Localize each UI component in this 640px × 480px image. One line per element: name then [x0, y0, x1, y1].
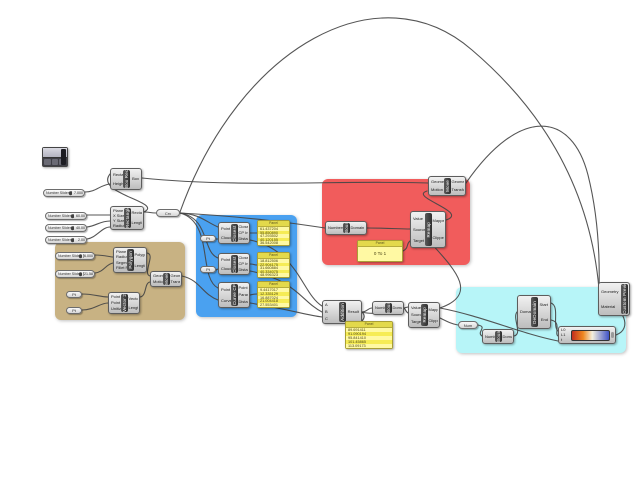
wire-hub-bounds-red[interactable]: [180, 213, 325, 228]
component-remap-bottom[interactable]: Value Source Target Remap Mapped Clipped: [408, 302, 440, 328]
port-label[interactable]: Plane: [112, 209, 124, 213]
component-closest-point-1[interactable]: Point Cloud Closest Point Closest Point …: [218, 222, 250, 244]
port-label[interactable]: Transform: [170, 280, 181, 284]
port-label[interactable]: Mapped: [432, 219, 445, 223]
param-point-a[interactable]: Pt: [66, 291, 82, 298]
port-label[interactable]: L1: [560, 333, 569, 337]
port-label[interactable]: Rectangle: [131, 211, 143, 215]
port-label[interactable]: Point A: [110, 295, 121, 299]
port-label[interactable]: Start: [538, 303, 550, 307]
slider-value: 60.00: [76, 214, 85, 218]
gradient-preview-bar[interactable]: [571, 330, 610, 341]
port-label[interactable]: Clipped: [428, 319, 439, 323]
mini-segment: [52, 159, 59, 165]
gradient-output-nub[interactable]: [611, 332, 614, 338]
component-name-strip: Rectangle: [124, 208, 131, 228]
component-bounds-red[interactable]: Numbers Bounds Domain: [325, 221, 367, 235]
wire-box-to-move[interactable]: [142, 178, 428, 183]
slider-track[interactable]: 21.58: [84, 271, 94, 277]
component-gradient[interactable]: L0 L1 t: [558, 326, 616, 344]
port-label[interactable]: Radius: [115, 255, 127, 259]
port-label[interactable]: B: [324, 310, 339, 314]
port-label[interactable]: Result: [346, 310, 361, 314]
port-label[interactable]: Curve: [220, 299, 231, 303]
port-label[interactable]: Target: [410, 320, 421, 324]
port-label[interactable]: Domain: [392, 306, 403, 310]
wire-cp2-panel2[interactable]: [250, 264, 257, 265]
wire-slider-y[interactable]: [87, 221, 110, 227]
component-bounds-cyan[interactable]: Numbers Bounds Domain: [482, 329, 514, 344]
port-label[interactable]: Y Size: [112, 219, 124, 223]
param-point-2[interactable]: Pt: [200, 266, 216, 273]
port-label[interactable]: Cloud: [220, 236, 231, 240]
slider-x-size[interactable]: Number Slider 60.00: [45, 212, 87, 220]
port-label[interactable]: Unitize: [110, 307, 121, 311]
wire-add-bounds[interactable]: [362, 308, 372, 312]
port-label[interactable]: Geometry: [170, 274, 181, 278]
component-name-strip: Move: [444, 178, 451, 194]
port-label[interactable]: Mapped: [428, 308, 439, 312]
param-point-b[interactable]: Pt: [66, 307, 82, 314]
component-custom-preview[interactable]: Geometry Material Custom Preview: [598, 282, 630, 316]
port-label[interactable]: Vector: [128, 297, 139, 301]
component-name-strip: Box Rectangle: [123, 170, 130, 188]
component-move-tan[interactable]: Geometry Motion Move Geometry Transform: [150, 271, 182, 287]
port-label[interactable]: Fillet Radius: [115, 266, 127, 270]
port-label[interactable]: X Size: [112, 214, 124, 218]
port-label[interactable]: Rectangle: [112, 173, 123, 177]
slider-radius[interactable]: Number Slider 2.00: [45, 236, 87, 244]
param-label: Pt: [72, 292, 76, 297]
port-label[interactable]: Plane: [115, 250, 127, 254]
wire-slider-height[interactable]: [85, 184, 110, 192]
component-name-strip: Vector 2Pt: [121, 294, 128, 312]
port-label[interactable]: Value: [412, 217, 425, 221]
slider-value: 2.00: [78, 238, 85, 242]
wire-ccp-panel3[interactable]: [250, 294, 257, 295]
param-label: Pt: [206, 236, 210, 241]
component-name-strip: Bounds: [385, 303, 392, 313]
component-name-strip: Curve CP: [231, 284, 238, 306]
panel-3[interactable]: Panel 9.4417017 12.335129 16.887024 21.0…: [257, 281, 290, 308]
mini-component[interactable]: [42, 147, 68, 167]
port-label[interactable]: Domain: [519, 310, 531, 314]
component-name-strip: Custom Preview: [621, 284, 628, 314]
component-name-strip: Bounds: [495, 331, 502, 342]
panel-red[interactable]: Panel 0 To 1: [357, 240, 403, 262]
port-label[interactable]: Point B: [110, 301, 121, 305]
component-vector-2pt[interactable]: Point A Point B Unitize Vector 2Pt Vecto…: [108, 292, 140, 314]
port-label[interactable]: Geometry: [430, 180, 444, 184]
slider-track[interactable]: 6.000: [84, 253, 94, 259]
slider-track[interactable]: 60.00: [74, 213, 86, 219]
port-label[interactable]: Point: [238, 286, 249, 290]
panel-2[interactable]: Panel 18.812506 22.904175 31.660884 40.3…: [257, 252, 290, 278]
param-number-cyan[interactable]: Num: [458, 321, 478, 329]
slider-knob[interactable]: [71, 214, 75, 218]
panel-1[interactable]: Panel 61.437204 55.850890 47.293502 40.1…: [257, 220, 290, 246]
param-label: Num: [464, 323, 472, 328]
wire-slider-r[interactable]: [87, 227, 110, 239]
port-label[interactable]: Geometry: [451, 180, 465, 184]
port-label[interactable]: Parameter: [238, 293, 249, 297]
component-name-strip: Bounds: [343, 223, 350, 233]
slider-knob[interactable]: [79, 254, 83, 258]
port-label[interactable]: Domain: [350, 226, 366, 230]
port-label[interactable]: L0: [560, 328, 569, 332]
grasshopper-canvas[interactable]: Number Slider 7.000 Number Slider 60.00 …: [0, 0, 640, 480]
slider-value: 7.000: [74, 191, 83, 195]
port-label[interactable]: Cloud: [220, 267, 231, 271]
wire-dd-l1[interactable]: [551, 320, 558, 336]
port-label[interactable]: Source: [412, 228, 425, 232]
param-point-1[interactable]: Pt: [200, 235, 216, 242]
slider-value: 40.00: [76, 226, 85, 230]
port-label[interactable]: Geometry: [152, 274, 163, 278]
port-label[interactable]: Polygon: [134, 253, 146, 257]
panel-row: 27.553401: [258, 303, 289, 307]
component-closest-point-2[interactable]: Point Cloud Closest Point Closest Point …: [218, 253, 250, 275]
port-label[interactable]: Source: [410, 313, 421, 317]
port-label[interactable]: Target: [412, 239, 425, 243]
param-label: Pt: [72, 308, 76, 313]
panel-row: 48.996323: [258, 273, 289, 277]
slider-track[interactable]: 7.000: [72, 190, 84, 196]
port-label[interactable]: Motion: [430, 188, 444, 192]
port-label[interactable]: Motion: [152, 280, 163, 284]
port-label[interactable]: Distance: [238, 300, 249, 304]
port-label[interactable]: Geometry: [600, 290, 621, 294]
wire-vec-move[interactable]: [140, 282, 150, 297]
wire-panelred-remap[interactable]: [403, 241, 410, 251]
port-label[interactable]: Length: [131, 221, 143, 225]
component-remap-red[interactable]: Value Source Target Remap Mapped Clipped: [410, 211, 446, 248]
wire-boundsred-remap[interactable]: [367, 228, 410, 229]
wire-remapb-capsule[interactable]: [440, 318, 458, 325]
port-label[interactable]: t: [560, 338, 569, 342]
port-label[interactable]: Length: [134, 264, 146, 268]
port-label[interactable]: Height: [112, 182, 123, 186]
param-curve-hub[interactable]: Crv: [156, 209, 180, 217]
wire-rect-to-hub[interactable]: [144, 212, 156, 213]
port-label[interactable]: Box: [130, 177, 141, 181]
wire-movered-arc-preview[interactable]: [466, 126, 599, 291]
wires-layer: [0, 0, 640, 480]
panel-bottom[interactable]: Panel 89.691411 91.090194 95.841410 101.…: [345, 321, 393, 349]
slider-value: 21.58: [84, 272, 93, 276]
component-name-strip: Move: [163, 273, 170, 285]
component-name-strip: Polygon: [127, 249, 134, 271]
component-bounds-bottom[interactable]: Numbers Bounds Domain: [372, 301, 404, 315]
slider-track[interactable]: 2.00: [74, 237, 86, 243]
port-label[interactable]: End: [538, 318, 550, 322]
port-label[interactable]: Numbers: [327, 226, 343, 230]
wire-ptA-vec[interactable]: [82, 294, 108, 297]
component-rectangle[interactable]: Plane X Size Y Size Radius Rectangle Rec…: [110, 206, 144, 230]
component-curve-closest-point[interactable]: Point Curve Curve CP Point Parameter Dis…: [218, 282, 250, 308]
port-label[interactable]: Distance: [238, 237, 249, 241]
slider-height[interactable]: Number Slider 7.000: [43, 189, 85, 197]
port-label[interactable]: Transform: [451, 188, 465, 192]
port-label[interactable]: CP Index: [238, 262, 249, 266]
port-label[interactable]: Segments: [115, 261, 127, 265]
port-label[interactable]: Material: [600, 305, 621, 309]
component-move-red[interactable]: Geometry Motion Move Geometry Transform: [428, 176, 466, 196]
port-label[interactable]: Numbers: [374, 306, 385, 310]
component-deconstruct-domain[interactable]: Domain DeDomain Start End: [517, 295, 551, 329]
port-label[interactable]: Point: [220, 288, 231, 292]
port-label[interactable]: Value: [410, 306, 421, 310]
slider-track[interactable]: 40.00: [74, 225, 86, 231]
slider-knob[interactable]: [71, 238, 75, 242]
wire-t1-polygon[interactable]: [95, 255, 113, 257]
panel-row: 36.542008: [258, 241, 289, 245]
port-label[interactable]: C: [324, 317, 339, 321]
component-name-strip: Remap: [421, 304, 428, 326]
slider-poly-radius[interactable]: Number Slider 6.000: [55, 252, 95, 260]
component-name-strip: Remap: [425, 213, 432, 246]
component-name-strip: DeDomain: [531, 297, 538, 327]
port-label[interactable]: Numbers: [484, 335, 495, 339]
component-name-strip: Closest Point: [231, 255, 238, 273]
port-label[interactable]: Domain: [502, 335, 513, 339]
panel-row: 113.09173: [346, 344, 392, 348]
port-label[interactable]: Radius: [112, 224, 124, 228]
port-label[interactable]: Distance: [238, 268, 249, 272]
port-label[interactable]: Point: [220, 227, 231, 231]
panel-row: 0 To 1: [358, 247, 402, 261]
param-label: Crv: [165, 211, 171, 216]
port-label[interactable]: CP Index: [238, 231, 249, 235]
slider-poly-segments[interactable]: Number Slider 21.58: [55, 270, 95, 278]
component-box-rectangle[interactable]: Rectangle Height Box Rectangle Box: [110, 168, 142, 190]
wire-t2-polygon[interactable]: [95, 263, 113, 273]
port-label[interactable]: Closest Point: [238, 256, 249, 260]
slider-knob[interactable]: [79, 272, 83, 276]
component-polygon[interactable]: Plane Radius Segments Fillet Radius Poly…: [113, 247, 147, 273]
wire-movetan-ccp[interactable]: [182, 276, 218, 300]
mini-component-tab: [61, 149, 66, 165]
slider-knob[interactable]: [71, 226, 75, 230]
mini-segment: [44, 159, 51, 165]
port-label[interactable]: Closest Point: [238, 225, 249, 229]
port-label[interactable]: A: [324, 303, 339, 307]
slider-y-size[interactable]: Number Slider 40.00: [45, 224, 87, 232]
port-label[interactable]: Clipped: [432, 236, 445, 240]
wire-ptB-vec[interactable]: [82, 303, 108, 310]
port-label[interactable]: Point: [220, 258, 231, 262]
component-name-strip: Closest Point: [231, 224, 238, 242]
component-name-strip: Addition: [339, 302, 346, 322]
param-label: Pt: [206, 267, 210, 272]
port-label[interactable]: Length: [128, 306, 139, 310]
slider-knob[interactable]: [69, 191, 73, 195]
slider-value: 6.000: [84, 254, 93, 258]
